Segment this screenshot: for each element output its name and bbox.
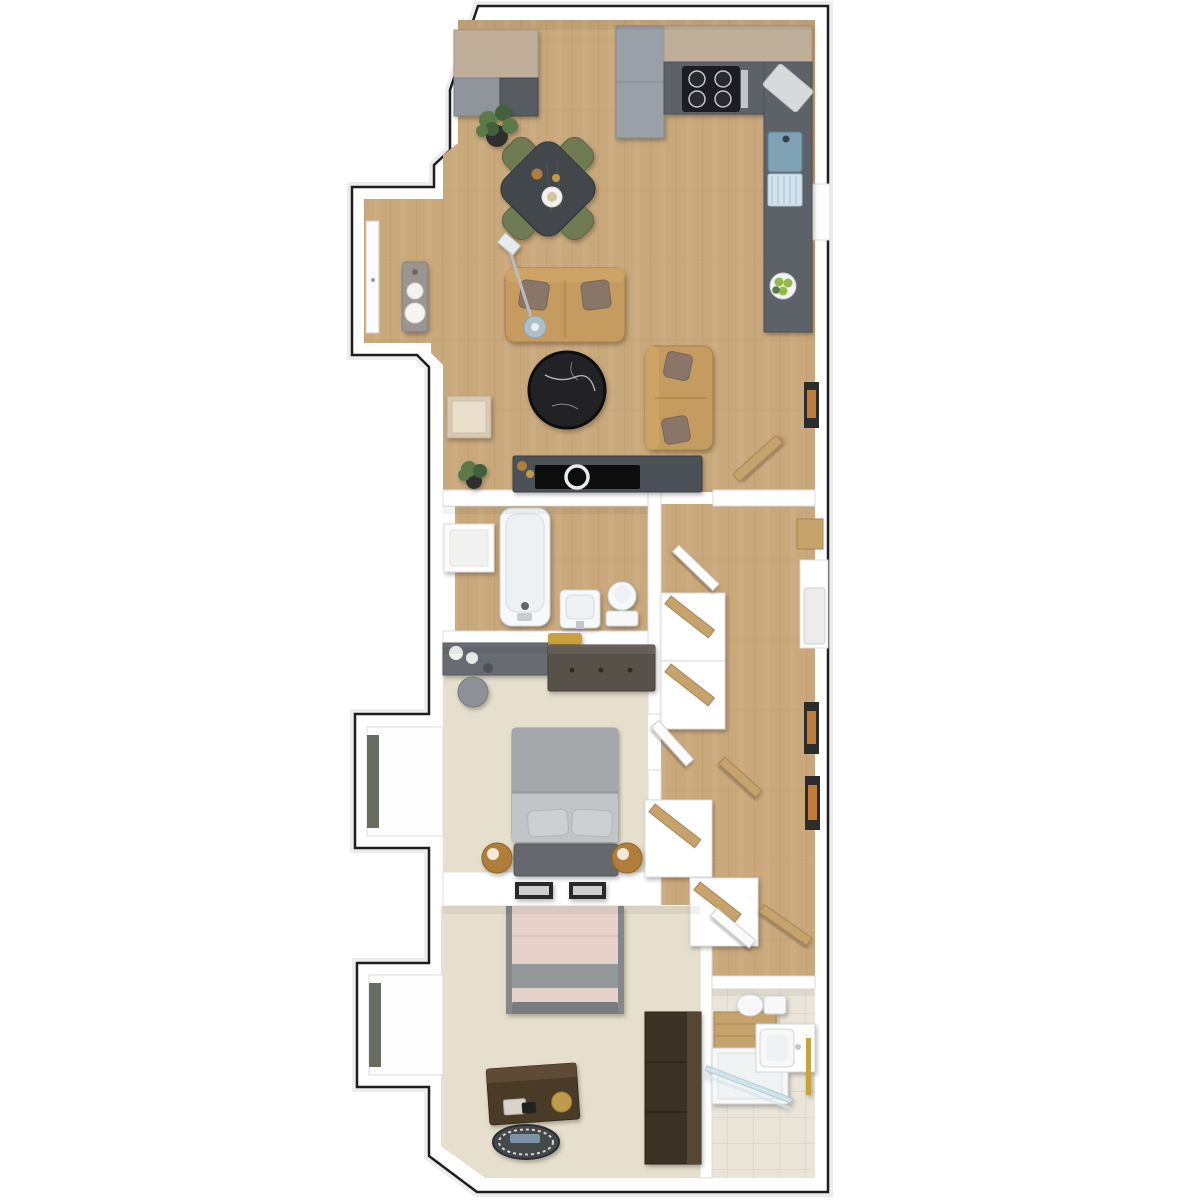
entry-closet [454, 30, 538, 116]
washbasin [560, 590, 600, 629]
window-bedroom1 [367, 735, 379, 828]
wall-art-hall-3 [805, 776, 820, 830]
fruit-bowl [770, 273, 796, 299]
wall-ensuite-left [700, 940, 712, 1178]
bed-1 [512, 728, 618, 876]
toilet [606, 582, 638, 626]
entry-door [366, 221, 379, 333]
towel-rail [806, 1038, 811, 1095]
storage-chest [486, 1063, 580, 1125]
kitchen-window-recess [810, 184, 830, 240]
towel [548, 633, 582, 645]
wall-ensuite-top [700, 976, 815, 989]
console-table [402, 262, 428, 332]
dining-set [494, 132, 601, 244]
tv-console [513, 456, 702, 492]
stool [458, 677, 488, 707]
closet-b [661, 661, 725, 729]
floor-plan-canvas [0, 0, 1200, 1200]
cup [532, 169, 543, 180]
bedside-lamp-left [482, 843, 512, 873]
bed-2 [506, 906, 624, 1014]
small-dish [552, 174, 560, 182]
decorative-tray [493, 1125, 559, 1159]
upper-cabinets [664, 26, 812, 62]
utility-cupboard [800, 560, 828, 648]
leaning-mirror [447, 396, 491, 438]
kitchen-sink [768, 132, 802, 206]
wall-niche-shelf [444, 524, 494, 572]
wall-living-hall [713, 490, 815, 506]
wall-art-divider-2 [569, 882, 606, 899]
door-handle [371, 278, 375, 282]
gas-hob [682, 66, 748, 112]
cake [547, 192, 557, 202]
closet-c [645, 800, 712, 877]
sofa [505, 268, 625, 342]
wardrobe [645, 1012, 701, 1164]
wall-art-hall-1 [804, 382, 819, 428]
wall-shelf-hall [797, 519, 823, 549]
loveseat [645, 346, 713, 450]
wall-art-hall-2 [804, 702, 819, 754]
wall-art-divider-1 [515, 882, 553, 899]
bedside-lamp-right [612, 843, 642, 873]
bathtub [500, 508, 550, 626]
coffee-table [529, 352, 605, 428]
floor-plan-stage [0, 0, 1200, 1200]
window-bedroom2 [369, 983, 381, 1067]
closet-a [661, 593, 725, 661]
